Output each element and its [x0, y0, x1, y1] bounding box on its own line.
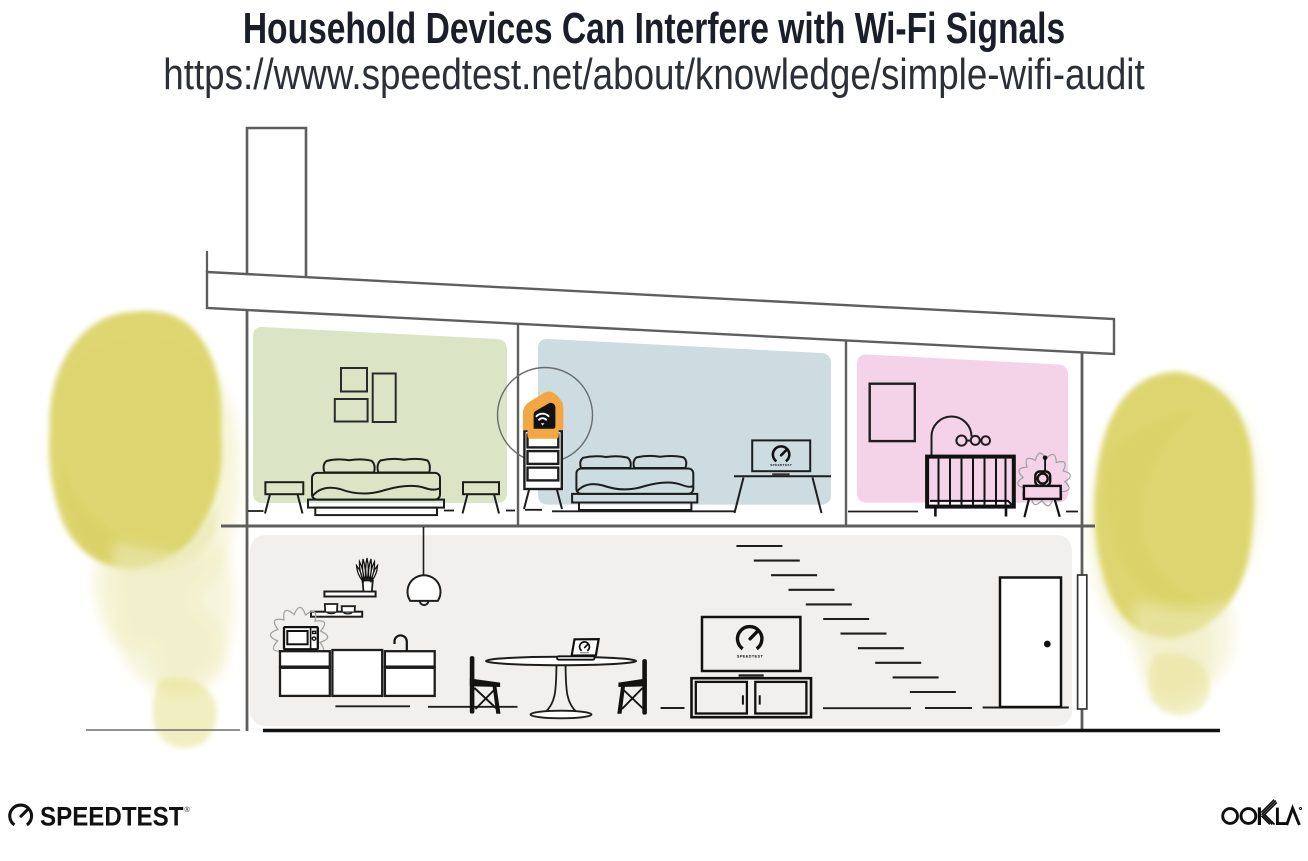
svg-text:SPEEDTEST: SPEEDTEST — [40, 802, 184, 832]
svg-text:®: ® — [185, 806, 191, 814]
svg-text:SPEEDTEST: SPEEDTEST — [737, 654, 764, 659]
svg-text:SPEEDTEST: SPEEDTEST — [770, 463, 792, 467]
